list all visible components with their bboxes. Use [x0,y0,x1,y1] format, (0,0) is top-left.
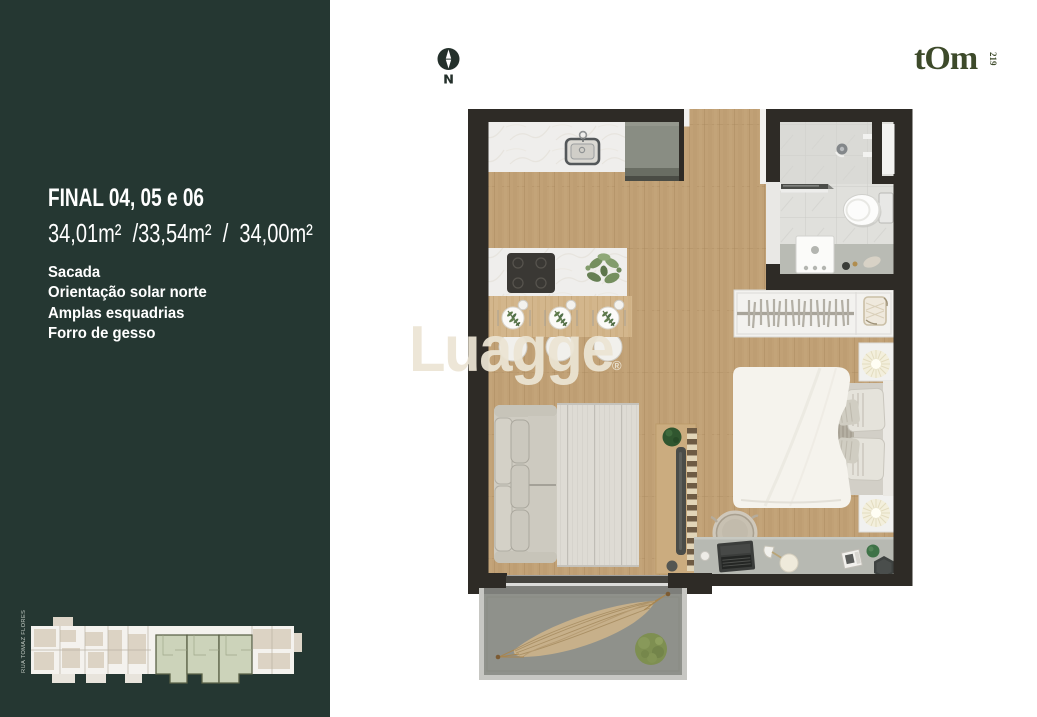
svg-text:219: 219 [988,52,998,66]
svg-text:RUA TOMAZ FLORES: RUA TOMAZ FLORES [21,610,27,673]
svg-text:Luagge: Luagge [409,313,613,386]
svg-text:®: ® [612,358,622,373]
svg-text:tOm: tOm [914,40,978,77]
